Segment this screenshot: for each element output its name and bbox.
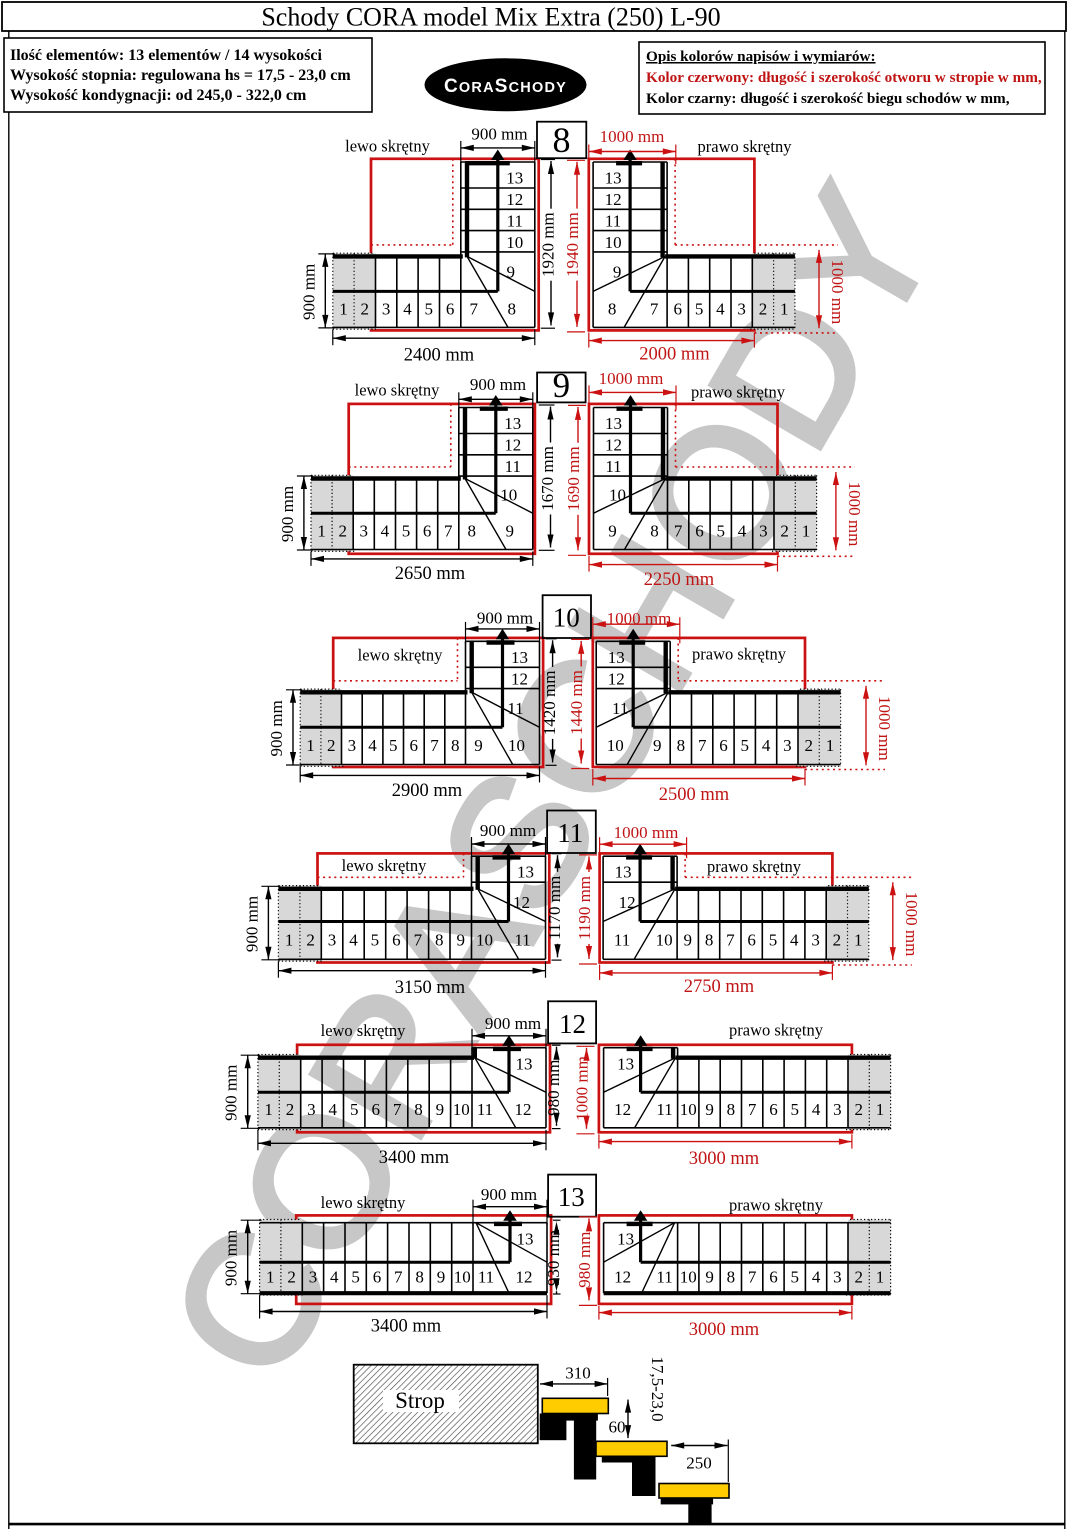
svg-text:6: 6 [747,930,756,949]
svg-text:12: 12 [619,893,636,912]
svg-text:prawo skrętny: prawo skrętny [692,645,787,664]
svg-text:12: 12 [614,1100,631,1119]
svg-text:5: 5 [791,1268,800,1287]
svg-text:10: 10 [656,930,673,949]
svg-text:900 mm: 900 mm [470,375,526,394]
svg-text:1670 mm: 1670 mm [538,446,557,511]
svg-text:2: 2 [854,1100,863,1119]
svg-text:7: 7 [414,930,423,949]
svg-text:3: 3 [811,930,820,949]
svg-text:11: 11 [507,699,523,718]
svg-text:4: 4 [368,736,377,755]
svg-text:6: 6 [695,521,704,540]
svg-text:8: 8 [414,1100,423,1119]
svg-text:900 mm: 900 mm [471,125,527,144]
svg-text:900 mm: 900 mm [477,609,533,628]
svg-text:7: 7 [394,1268,403,1287]
svg-text:1: 1 [306,736,315,755]
svg-text:8: 8 [650,521,659,540]
svg-text:11: 11 [605,457,621,476]
svg-text:3: 3 [382,299,391,318]
svg-text:6: 6 [446,299,455,318]
svg-text:3: 3 [307,1100,316,1119]
svg-text:4: 4 [381,521,390,540]
svg-text:6: 6 [769,1268,778,1287]
svg-text:11: 11 [505,457,521,476]
svg-text:4: 4 [790,930,799,949]
svg-text:4: 4 [762,736,771,755]
svg-text:7: 7 [430,736,439,755]
svg-text:8: 8 [553,120,571,160]
svg-text:3400 mm: 3400 mm [371,1317,442,1337]
svg-text:3: 3 [348,736,357,755]
svg-text:11: 11 [514,930,530,949]
svg-text:lewo skrętny: lewo skrętny [358,646,444,665]
svg-text:8: 8 [705,930,714,949]
svg-text:10: 10 [508,736,525,755]
svg-text:13: 13 [511,648,528,667]
svg-text:900 mm: 900 mm [299,264,318,320]
svg-text:11: 11 [605,211,621,230]
svg-text:8: 8 [608,299,617,318]
svg-text:12: 12 [608,669,625,688]
svg-text:6: 6 [371,1100,380,1119]
svg-text:5: 5 [351,1268,360,1287]
svg-text:2: 2 [361,299,370,318]
svg-text:3: 3 [783,736,792,755]
svg-text:1940 mm: 1940 mm [563,212,582,277]
svg-text:4: 4 [403,299,412,318]
svg-text:1000 mm: 1000 mm [599,369,664,388]
svg-text:8: 8 [468,521,477,540]
svg-text:3: 3 [737,299,746,318]
svg-text:6: 6 [674,299,683,318]
svg-text:980 mm: 980 mm [575,1232,594,1288]
svg-text:5: 5 [425,299,434,318]
svg-text:5: 5 [389,736,398,755]
svg-text:9: 9 [608,521,617,540]
svg-text:3: 3 [309,1268,318,1287]
svg-text:1920 mm: 1920 mm [539,212,558,277]
svg-text:10: 10 [680,1268,697,1287]
svg-text:6: 6 [392,930,401,949]
svg-text:13: 13 [506,169,523,188]
svg-text:6: 6 [719,736,728,755]
svg-text:5: 5 [741,736,750,755]
svg-text:900 mm: 900 mm [480,821,536,840]
svg-text:4: 4 [716,299,725,318]
svg-text:9: 9 [506,521,515,540]
svg-text:prawo skrętny: prawo skrętny [707,857,802,876]
svg-text:4: 4 [812,1268,821,1287]
svg-text:prawo skrętny: prawo skrętny [729,1021,824,1040]
svg-text:11: 11 [614,930,630,949]
svg-text:4: 4 [738,521,747,540]
svg-text:Kolor czerwony: długość i szer: Kolor czerwony: długość i szerokość otwo… [646,69,1042,86]
svg-text:1690 mm: 1690 mm [564,446,583,511]
svg-text:1: 1 [854,930,863,949]
svg-text:CORASCHODY: CORASCHODY [444,76,567,97]
svg-text:5: 5 [717,521,726,540]
svg-text:13: 13 [617,1055,634,1074]
svg-text:900 mm: 900 mm [242,896,261,952]
svg-text:1000 mm: 1000 mm [828,260,847,325]
svg-text:13: 13 [516,1055,533,1074]
svg-text:2400 mm: 2400 mm [404,346,475,366]
svg-text:12: 12 [614,1268,631,1287]
svg-text:lewo skrętny: lewo skrętny [321,1021,407,1040]
svg-text:8: 8 [415,1268,424,1287]
svg-text:1000 mm: 1000 mm [607,609,672,628]
svg-text:10: 10 [476,930,493,949]
svg-text:lewo skrętny: lewo skrętny [345,137,431,156]
svg-text:1170 mm: 1170 mm [545,876,564,940]
svg-text:5: 5 [695,299,704,318]
svg-text:2: 2 [327,736,336,755]
svg-text:prawo skrętny: prawo skrętny [691,383,786,402]
svg-text:1000 mm: 1000 mm [845,482,864,547]
svg-text:9: 9 [507,263,516,282]
svg-text:2: 2 [286,1100,295,1119]
svg-text:3000 mm: 3000 mm [689,1149,760,1169]
svg-text:2250 mm: 2250 mm [644,570,715,590]
svg-text:13: 13 [517,1230,534,1249]
svg-text:13: 13 [605,414,622,433]
svg-text:prawo skrętny: prawo skrętny [698,137,793,156]
svg-text:6: 6 [423,521,432,540]
svg-text:10: 10 [500,486,517,505]
svg-text:2: 2 [854,1268,863,1287]
svg-text:10: 10 [605,233,622,252]
svg-text:1: 1 [826,736,835,755]
svg-text:1: 1 [264,1100,273,1119]
svg-text:3150 mm: 3150 mm [395,978,466,998]
svg-text:1: 1 [802,521,811,540]
svg-text:11: 11 [477,1100,493,1119]
svg-text:lewo skrętny: lewo skrętny [342,856,428,875]
svg-text:2: 2 [287,1268,296,1287]
svg-text:lewo skrętny: lewo skrętny [355,381,441,400]
svg-text:10: 10 [609,486,626,505]
svg-text:4: 4 [812,1100,821,1119]
svg-text:60: 60 [609,1418,626,1437]
svg-text:11: 11 [478,1268,494,1287]
svg-text:5: 5 [402,521,411,540]
svg-text:310: 310 [565,1364,591,1383]
svg-text:2750 mm: 2750 mm [684,977,755,997]
svg-text:2: 2 [804,736,813,755]
svg-text:8: 8 [727,1100,736,1119]
svg-text:2: 2 [833,930,842,949]
svg-text:3: 3 [328,930,337,949]
svg-text:2650 mm: 2650 mm [395,564,466,584]
svg-text:2: 2 [780,521,789,540]
svg-text:6: 6 [769,1100,778,1119]
svg-text:13: 13 [605,169,622,188]
svg-text:12: 12 [605,190,622,209]
svg-text:prawo skrętny: prawo skrętny [729,1196,824,1215]
svg-text:12: 12 [504,436,521,455]
svg-text:1000 mm: 1000 mm [573,1056,592,1121]
svg-text:7: 7 [444,521,453,540]
svg-text:7: 7 [393,1100,402,1119]
svg-text:10: 10 [454,1268,471,1287]
svg-text:2: 2 [759,299,768,318]
svg-text:900 mm: 900 mm [278,486,297,542]
svg-text:9: 9 [457,930,466,949]
svg-text:11: 11 [656,1268,672,1287]
svg-text:5: 5 [350,1100,359,1119]
svg-text:12: 12 [506,190,523,209]
svg-text:Opis kolorów napisów i wymiaró: Opis kolorów napisów i wymiarów: [646,48,876,65]
svg-text:3: 3 [833,1100,842,1119]
svg-text:1420 mm: 1420 mm [540,671,559,736]
svg-text:1: 1 [876,1100,885,1119]
svg-text:250: 250 [686,1453,712,1472]
svg-text:1000 mm: 1000 mm [614,823,679,842]
svg-text:1000 mm: 1000 mm [875,696,894,761]
svg-text:10: 10 [607,736,624,755]
svg-text:13: 13 [615,863,632,882]
svg-text:7: 7 [470,299,479,318]
svg-text:17,5-23,0: 17,5-23,0 [648,1356,667,1421]
svg-text:900 mm: 900 mm [222,1230,241,1286]
svg-text:12: 12 [516,1268,533,1287]
svg-text:1: 1 [266,1268,275,1287]
svg-text:1000 mm: 1000 mm [600,127,665,146]
svg-text:2000 mm: 2000 mm [639,345,710,365]
svg-text:2500 mm: 2500 mm [659,785,730,805]
svg-text:4: 4 [349,930,358,949]
svg-text:900 mm: 900 mm [481,1185,537,1204]
svg-text:3400 mm: 3400 mm [379,1148,450,1168]
svg-text:7: 7 [748,1100,757,1119]
svg-text:930 mm: 930 mm [544,1230,563,1286]
svg-text:9: 9 [613,263,622,282]
svg-text:7: 7 [650,299,659,318]
svg-text:9: 9 [474,736,483,755]
svg-text:13: 13 [608,648,625,667]
svg-text:5: 5 [769,930,778,949]
svg-text:13: 13 [504,414,521,433]
svg-text:Kolor czarny: długość i szerok: Kolor czarny: długość i szerokość biegu … [646,90,1010,107]
svg-text:7: 7 [726,930,735,949]
svg-text:4: 4 [330,1268,339,1287]
svg-text:10: 10 [453,1100,470,1119]
svg-text:9: 9 [436,1100,445,1119]
svg-text:Wysokość stopnia: regulowana: Wysokość stopnia: regulowana hs = 17,5 -… [10,67,351,84]
svg-text:980 mm: 980 mm [544,1060,563,1116]
svg-text:9: 9 [437,1268,446,1287]
svg-text:Schody CORA model Mix Extra (2: Schody CORA model Mix Extra (250) L-90 [261,3,720,32]
svg-text:1: 1 [285,930,294,949]
svg-text:11: 11 [557,818,583,848]
svg-text:12: 12 [605,436,622,455]
svg-text:5: 5 [791,1100,800,1119]
svg-text:lewo skrętny: lewo skrętny [321,1193,407,1212]
svg-text:7: 7 [748,1268,757,1287]
svg-text:900 mm: 900 mm [267,700,286,756]
svg-text:13: 13 [517,863,534,882]
svg-text:6: 6 [410,736,419,755]
svg-text:1: 1 [876,1268,885,1287]
svg-text:Wysokość kondygnacji: od 245,0: Wysokość kondygnacji: od 245,0 - 322,0 c… [10,87,307,104]
svg-text:7: 7 [674,521,683,540]
svg-text:3: 3 [833,1268,842,1287]
svg-text:2900 mm: 2900 mm [392,781,463,801]
svg-text:8: 8 [435,930,444,949]
svg-text:9: 9 [705,1268,714,1287]
svg-text:11: 11 [656,1100,672,1119]
svg-text:6: 6 [373,1268,382,1287]
svg-text:5: 5 [371,930,380,949]
svg-text:Ilość elementów: 13 elementów: Ilość elementów: 13 elementów / 14 wysok… [10,47,323,64]
svg-text:3000 mm: 3000 mm [689,1320,760,1340]
svg-text:3: 3 [360,521,369,540]
svg-text:1: 1 [339,299,348,318]
svg-text:9: 9 [684,930,693,949]
svg-text:9: 9 [553,366,571,405]
svg-text:8: 8 [677,736,686,755]
svg-text:1440 mm: 1440 mm [567,670,586,735]
svg-text:11: 11 [612,699,628,718]
svg-text:7: 7 [698,736,707,755]
svg-text:11: 11 [507,211,523,230]
svg-text:1: 1 [317,521,326,540]
svg-text:12: 12 [515,1100,532,1119]
svg-text:12: 12 [511,669,528,688]
svg-text:2: 2 [306,930,315,949]
svg-text:1000 mm: 1000 mm [902,892,921,957]
svg-text:900 mm: 900 mm [222,1065,241,1121]
svg-text:2: 2 [338,521,347,540]
svg-text:10: 10 [506,233,523,252]
svg-text:10: 10 [680,1100,697,1119]
svg-text:9: 9 [653,736,662,755]
svg-text:10: 10 [553,603,580,633]
svg-text:8: 8 [451,736,460,755]
svg-text:13: 13 [558,1182,585,1212]
svg-text:900 mm: 900 mm [485,1014,541,1033]
svg-text:1: 1 [780,299,789,318]
svg-text:8: 8 [508,299,517,318]
svg-text:3: 3 [759,521,768,540]
svg-text:12: 12 [513,893,530,912]
svg-text:1190 mm: 1190 mm [575,876,594,940]
svg-text:Strop: Strop [395,1388,445,1413]
svg-text:9: 9 [705,1100,714,1119]
svg-text:8: 8 [727,1268,736,1287]
svg-text:13: 13 [617,1230,634,1249]
svg-text:12: 12 [559,1009,586,1039]
svg-text:4: 4 [329,1100,338,1119]
